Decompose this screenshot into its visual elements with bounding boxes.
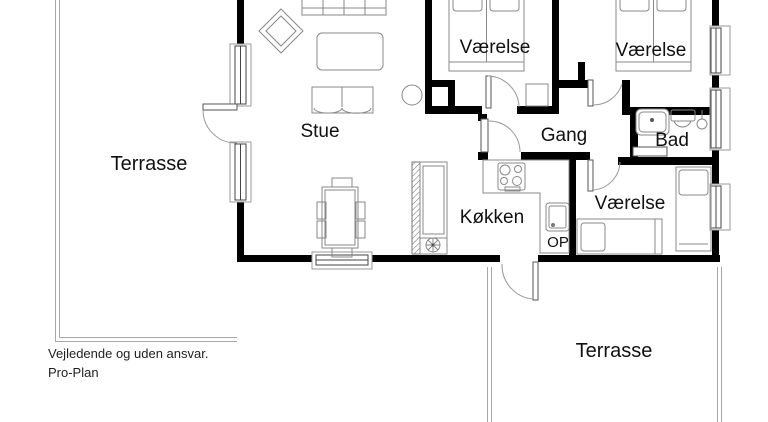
floor-plan-drawing: Terrasse Stue Værelse Værelse Gang Bad K… [0, 0, 768, 422]
window-west-1 [230, 44, 251, 106]
kitchen-sink-icon [546, 203, 569, 231]
window-west-2 [230, 142, 251, 202]
coffee-table [317, 33, 383, 70]
door-bedroom-top-right [588, 80, 622, 106]
disclaimer-text: Vejledende og uden ansvar. [48, 346, 208, 361]
room-label-bad: Bad [655, 130, 689, 151]
footer-text: Vejledende og uden ansvar. Pro-Plan [48, 346, 208, 380]
fan-icon [426, 238, 440, 252]
fridge-unit [412, 162, 447, 254]
window-east-2 [710, 88, 730, 150]
room-label-koekken: Køkken [460, 207, 524, 228]
double-bed-left [449, 0, 524, 71]
wardrobe-bedroom-left [526, 84, 548, 106]
single-bed-horizontal [577, 219, 662, 254]
window-east-1 [710, 26, 730, 75]
room-label-terrace-bottom: Terrasse [576, 340, 653, 362]
dining-table [317, 178, 365, 257]
armchair [259, 9, 303, 53]
door-terrace-kitchen [502, 262, 538, 300]
room-label-vaerelse-bottom: Værelse [595, 193, 666, 214]
label-op: OP [547, 234, 569, 251]
floor-plan-canvas: Terrasse Stue Værelse Værelse Gang Bad K… [0, 0, 768, 422]
brand-text: Pro-Plan [48, 365, 99, 380]
room-labels: Terrasse Stue Værelse Værelse Gang Bad K… [111, 37, 689, 362]
plant-icon [402, 85, 422, 105]
room-label-terrace-left: Terrasse [111, 153, 188, 175]
door-kitchen-hall [481, 119, 520, 152]
door-bedroom-top-left [486, 76, 519, 108]
sofa-large [302, 0, 386, 15]
window-south-dining [312, 252, 372, 269]
room-label-vaerelse-top-left: Værelse [460, 37, 531, 58]
single-bed-vertical [676, 167, 711, 251]
room-label-gang: Gang [541, 125, 587, 146]
sofa-small [312, 87, 373, 113]
door-terrace-west [203, 104, 237, 143]
window-east-3 [710, 184, 730, 230]
room-label-vaerelse-top-right: Værelse [616, 40, 687, 61]
room-label-stue: Stue [300, 121, 339, 142]
door-bedroom-bottom [588, 160, 620, 191]
stove-icon [498, 163, 525, 191]
